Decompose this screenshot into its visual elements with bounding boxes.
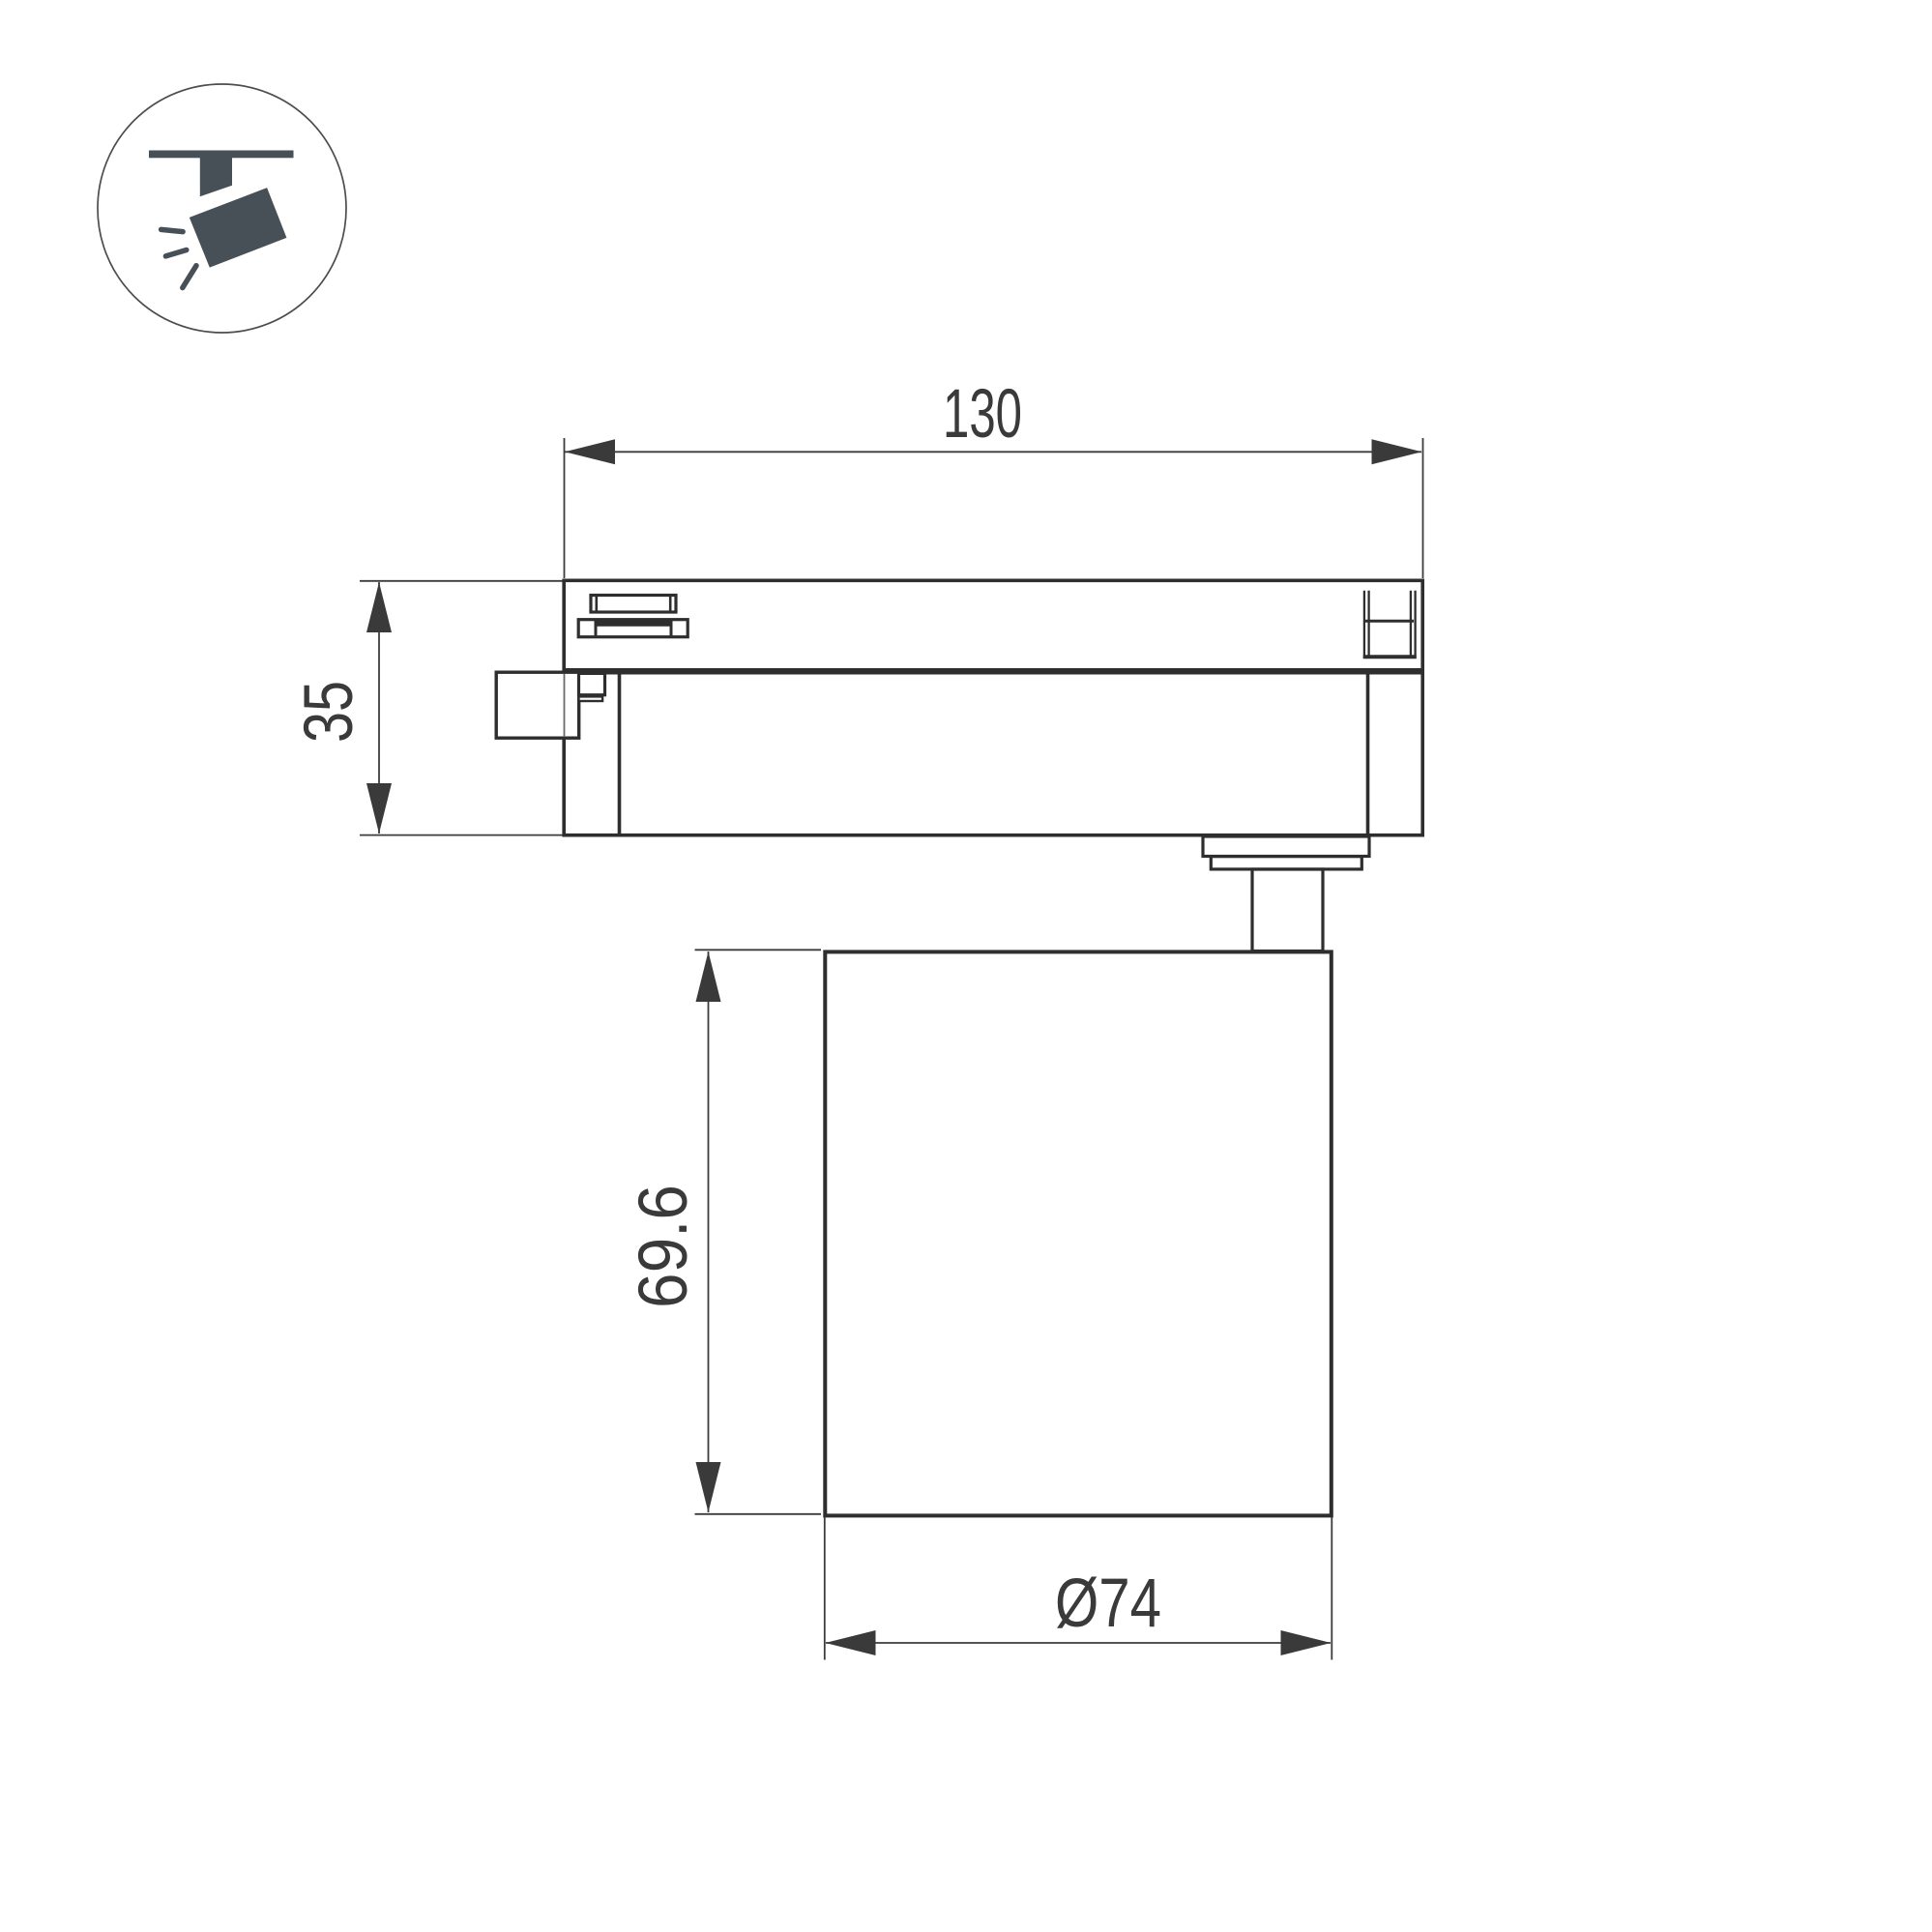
svg-text:35: 35: [291, 681, 367, 743]
svg-text:Ø74: Ø74: [1055, 1566, 1161, 1642]
svg-text:130: 130: [943, 376, 1022, 453]
svg-text:69.6: 69.6: [626, 1185, 702, 1308]
